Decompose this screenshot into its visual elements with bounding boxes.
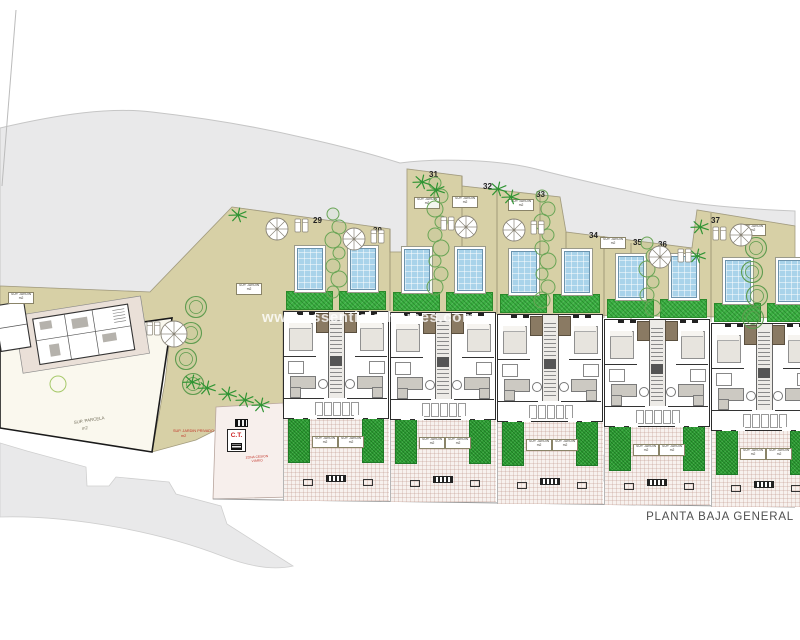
interior-wall-right [355, 356, 387, 357]
rear-window-gap [629, 423, 638, 427]
bathroom-left [609, 369, 625, 382]
planting-bed [362, 417, 384, 463]
terrace-wall-left [391, 399, 431, 400]
bathroom-left [502, 364, 518, 377]
interior-wall-left [284, 356, 316, 357]
terrace-lounger [645, 410, 653, 424]
lawn-strip [660, 299, 707, 318]
rear-window-gap [689, 423, 698, 427]
rear-window-gap [354, 415, 363, 419]
garden-area-label: SUP. JARDINm2 [414, 197, 440, 209]
sofa-corner-left [718, 399, 729, 410]
bathroom-right [476, 362, 492, 375]
front-yard-area-label: SUP. JARDINm2 [445, 437, 471, 449]
rear-window-gap [475, 416, 484, 420]
area-label-line2: m2 [446, 442, 470, 446]
plot-number: 36 [658, 240, 667, 249]
terrace-wall-left [284, 398, 324, 399]
stairs-lower [544, 371, 556, 399]
table-left [532, 382, 542, 392]
pool [511, 251, 537, 293]
entry-door-right [684, 483, 694, 490]
planting-bed [683, 425, 705, 471]
pool [457, 249, 483, 291]
area-label-line2: m2 [660, 449, 684, 453]
area-label-line2: m2 [415, 202, 439, 206]
rear-window-gap [294, 415, 303, 419]
stairs-upper [544, 323, 556, 357]
garden-area-label: SUP. JARDINm2 [600, 237, 626, 249]
entry-steps [540, 478, 560, 485]
stairs-lower [651, 376, 663, 404]
terrace-wall-right [347, 398, 387, 399]
rear-window-gap [522, 418, 531, 422]
facade-window-tick [737, 324, 743, 327]
entry-door-left [517, 482, 527, 489]
pool [671, 256, 697, 298]
area-label-line2: m2 [553, 444, 577, 448]
lawn-strip [767, 303, 800, 322]
entry-steps [326, 475, 346, 482]
house-block [283, 311, 389, 419]
lawn-strip [714, 303, 761, 322]
rear-window-gap [368, 415, 377, 419]
planting-bed [395, 418, 417, 464]
facade-window-tick [692, 320, 698, 323]
transformer-box: C.T. [227, 429, 246, 452]
terrace-lounger [654, 410, 662, 424]
garden-area-label: SUP. JARDINm2 [452, 196, 478, 208]
terrace-lounger [440, 403, 448, 417]
terrace-wall-right [668, 406, 708, 407]
terrace-lounger [449, 403, 457, 417]
sofa-corner-right [586, 390, 597, 401]
lawn-strip [339, 291, 386, 310]
table-left [639, 387, 649, 397]
wardrobe-right [558, 316, 571, 336]
plot-number: 31 [429, 170, 438, 179]
plot-number: 32 [483, 182, 492, 191]
entry-steps [647, 479, 667, 486]
planting-bed [288, 417, 310, 463]
site-plan-canvas: SUP. PARCELA m2 SUP. JARDIN PRIVADO m2 S… [0, 0, 800, 640]
facade-window-tick [618, 320, 624, 323]
interior-wall-right [569, 359, 601, 360]
facade-window-tick [787, 324, 793, 327]
stairs-upper [437, 321, 449, 355]
terrace-lounger [752, 414, 760, 428]
wardrobe-right [772, 325, 785, 345]
plot-number: 30 [373, 226, 382, 235]
planting-bed [469, 418, 491, 464]
front-yard-area-label: SUP. JARDINm2 [552, 439, 578, 451]
facade-window-tick [630, 320, 636, 323]
bed-pillow-right [788, 335, 800, 341]
bathroom-left [288, 361, 304, 374]
interior-wall-right [783, 368, 800, 369]
stairs-lower [437, 369, 449, 397]
plot-divider-line [711, 431, 712, 507]
interior-wall-left [391, 357, 423, 358]
entry-door-right [577, 482, 587, 489]
stair-landing [330, 356, 342, 366]
area-label-line2: m2 [9, 297, 33, 301]
entry-door-right [791, 485, 800, 492]
terrace-lounger [761, 414, 769, 428]
table-left [318, 379, 328, 389]
wardrobe-left [744, 325, 757, 345]
bed-pillow-left [610, 331, 632, 337]
terrace-lounger [770, 414, 778, 428]
plot-divider-line [604, 427, 605, 505]
utility-meter-box [235, 419, 248, 427]
interior-wall-left [605, 364, 637, 365]
terrace-wall-right [561, 401, 601, 402]
plot-number: 29 [313, 216, 322, 225]
entry-door-left [303, 479, 313, 486]
rear-window-gap [796, 427, 800, 431]
terrace-lounger [333, 402, 341, 416]
stair-landing [544, 359, 556, 369]
zone-note: ZONA CESION VIARIO [246, 454, 288, 471]
entry-steps [754, 481, 774, 488]
entry-door-left [410, 480, 420, 487]
entry-door-right [470, 480, 480, 487]
garden-area-label: SUP. JARDINm2 [8, 292, 34, 304]
bathroom-left [395, 362, 411, 375]
entry-door-right [363, 479, 373, 486]
bed-pillow-right [681, 331, 703, 337]
sofa-corner-left [504, 390, 515, 401]
plan-title: PLANTA BAJA GENERAL [646, 511, 794, 523]
terrace-lounger [342, 402, 350, 416]
stairs-upper [758, 332, 770, 366]
bed-pillow-right [574, 326, 596, 332]
house-block [497, 314, 603, 422]
rear-window-gap [461, 416, 470, 420]
terrace-wall-left [498, 401, 538, 402]
table-right [773, 391, 783, 401]
front-yard-area-label: SUP. JARDINm2 [526, 439, 552, 451]
planting-bed [576, 420, 598, 466]
plot-number: 37 [711, 216, 720, 225]
table-right [559, 382, 569, 392]
garden-area-label: SUP. JARDINm2 [236, 283, 262, 295]
stair-landing [437, 357, 449, 367]
facade-window-tick [573, 315, 579, 318]
entry-door-left [624, 483, 634, 490]
bed-pillow-left [717, 335, 739, 341]
terrace-lounger [538, 405, 546, 419]
plot-number: 34 [589, 231, 598, 240]
sofa-corner-right [372, 387, 383, 398]
rear-window-gap [675, 423, 684, 427]
entry-door-left [731, 485, 741, 492]
front-yard-area-label: SUP. JARDINm2 [740, 448, 766, 460]
area-label-line2: m2 [339, 441, 363, 445]
bathroom-right [583, 364, 599, 377]
wardrobe-left [637, 321, 650, 341]
sofa-corner-right [479, 388, 490, 399]
facade-window-tick [585, 315, 591, 318]
entry-steps [433, 476, 453, 483]
area-label-line2: m2 [237, 288, 261, 292]
wardrobe-right [665, 321, 678, 341]
area-label-line2: m2 [313, 441, 337, 445]
sofa-corner-left [611, 395, 622, 406]
facade-window-tick [725, 324, 731, 327]
ct-vent-grille [231, 443, 242, 450]
pool [350, 248, 376, 290]
table-right [666, 387, 676, 397]
pool [778, 260, 800, 302]
sofa-right [785, 388, 800, 401]
pool [564, 251, 590, 293]
terrace-lounger [556, 405, 564, 419]
pool [297, 248, 323, 290]
front-yard-area-label: SUP. JARDINm2 [419, 437, 445, 449]
front-yard-area-label: SUP. JARDINm2 [338, 436, 364, 448]
rear-window-gap [582, 418, 591, 422]
ct-label: C.T. [228, 432, 245, 439]
rear-window-gap [568, 418, 577, 422]
plot-number: 33 [536, 190, 545, 199]
bathroom-left [716, 373, 732, 386]
pool [725, 260, 751, 302]
bed-pillow-left [503, 326, 525, 332]
sofa-corner-left [397, 388, 408, 399]
area-label-line2: m2 [767, 453, 791, 457]
plot-divider-line [497, 422, 498, 504]
rear-window-gap [308, 415, 317, 419]
stairs-lower [330, 368, 342, 396]
area-label-line2: m2 [509, 204, 533, 208]
terrace-wall-right [775, 410, 800, 411]
rear-window-gap [415, 416, 424, 420]
rear-window-gap [736, 427, 745, 431]
area-label-line2: m2 [453, 201, 477, 205]
lawn-strip [607, 299, 654, 318]
rear-window-gap [782, 427, 791, 431]
area-label-line2: m2 [420, 442, 444, 446]
front-yard-area-label: SUP. JARDINm2 [766, 448, 792, 460]
area-label-line2: m2 [601, 242, 625, 246]
pool [404, 249, 430, 291]
stairs-upper [651, 328, 663, 362]
front-yard-area-label: SUP. JARDINm2 [659, 444, 685, 456]
area-label-line2: m2 [741, 453, 765, 457]
plot-number: 35 [633, 238, 642, 247]
sofa-corner-left [290, 387, 301, 398]
terrace-lounger [547, 405, 555, 419]
table-right [345, 379, 355, 389]
area-label-line2: m2 [634, 449, 658, 453]
plot-divider-line [390, 420, 391, 502]
front-yard-area-label: SUP. JARDINm2 [312, 436, 338, 448]
table-left [746, 391, 756, 401]
terrace-wall-left [605, 406, 645, 407]
planting-bed [609, 425, 631, 471]
pool [618, 256, 644, 298]
rear-window-gap [401, 416, 410, 420]
garden-area-label: SUP. JARDINm2 [740, 224, 766, 236]
table-right [452, 380, 462, 390]
front-yard-area-label: SUP. JARDINm2 [633, 444, 659, 456]
terrace-lounger [324, 402, 332, 416]
house-block [604, 319, 710, 427]
rear-window-gap [615, 423, 624, 427]
facade-window-tick [680, 320, 686, 323]
rear-window-gap [722, 427, 731, 431]
interior-wall-left [712, 368, 744, 369]
terrace-wall-left [712, 410, 752, 411]
table-left [425, 380, 435, 390]
lawn-strip [553, 294, 600, 313]
watermark: www.essentials-homes.com [262, 309, 542, 326]
stair-landing [651, 364, 663, 374]
interior-wall-right [676, 364, 708, 365]
planting-bed [502, 420, 524, 466]
interior-wall-left [498, 359, 530, 360]
area-label-line2: m2 [741, 229, 765, 233]
bathroom-right [690, 369, 706, 382]
sofa-corner-right [693, 395, 704, 406]
house-block [390, 312, 496, 420]
house-block [711, 323, 800, 431]
lawn-strip [286, 291, 333, 310]
rear-window-gap [508, 418, 517, 422]
stairs-lower [758, 380, 770, 408]
terrace-lounger [663, 410, 671, 424]
stair-landing [758, 368, 770, 378]
interior-wall-right [462, 357, 494, 358]
terrace-lounger [431, 403, 439, 417]
area-label-line2: m2 [527, 444, 551, 448]
garden-area-label: SUP. JARDINm2 [508, 199, 534, 211]
planting-bed [716, 429, 738, 475]
bathroom-right [369, 361, 385, 374]
terrace-wall-right [454, 399, 494, 400]
